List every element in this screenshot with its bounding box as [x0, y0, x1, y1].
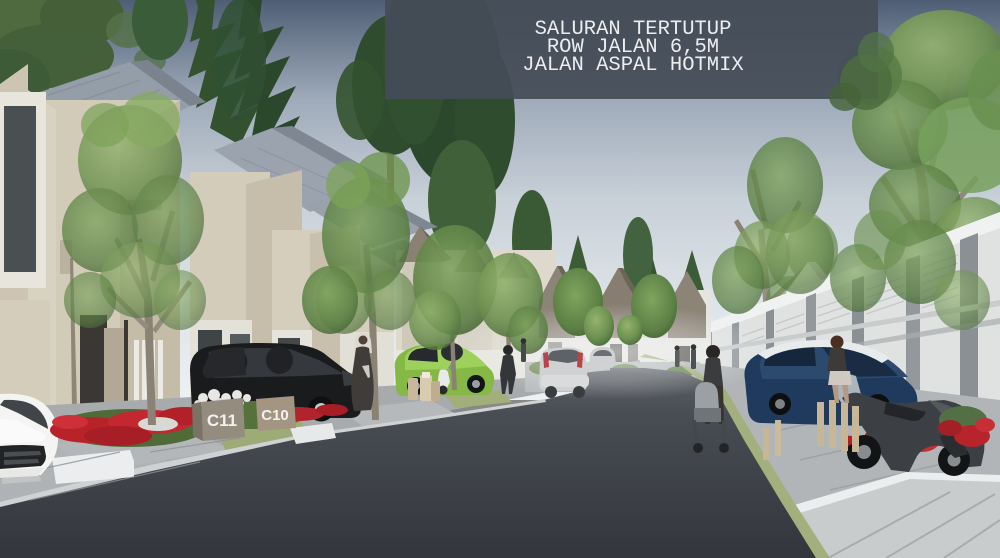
svg-text:JALAN ASPAL HOTMIX: JALAN ASPAL HOTMIX: [522, 54, 743, 77]
svg-text:C11: C11: [207, 411, 237, 430]
svg-text:C10: C10: [261, 407, 289, 424]
